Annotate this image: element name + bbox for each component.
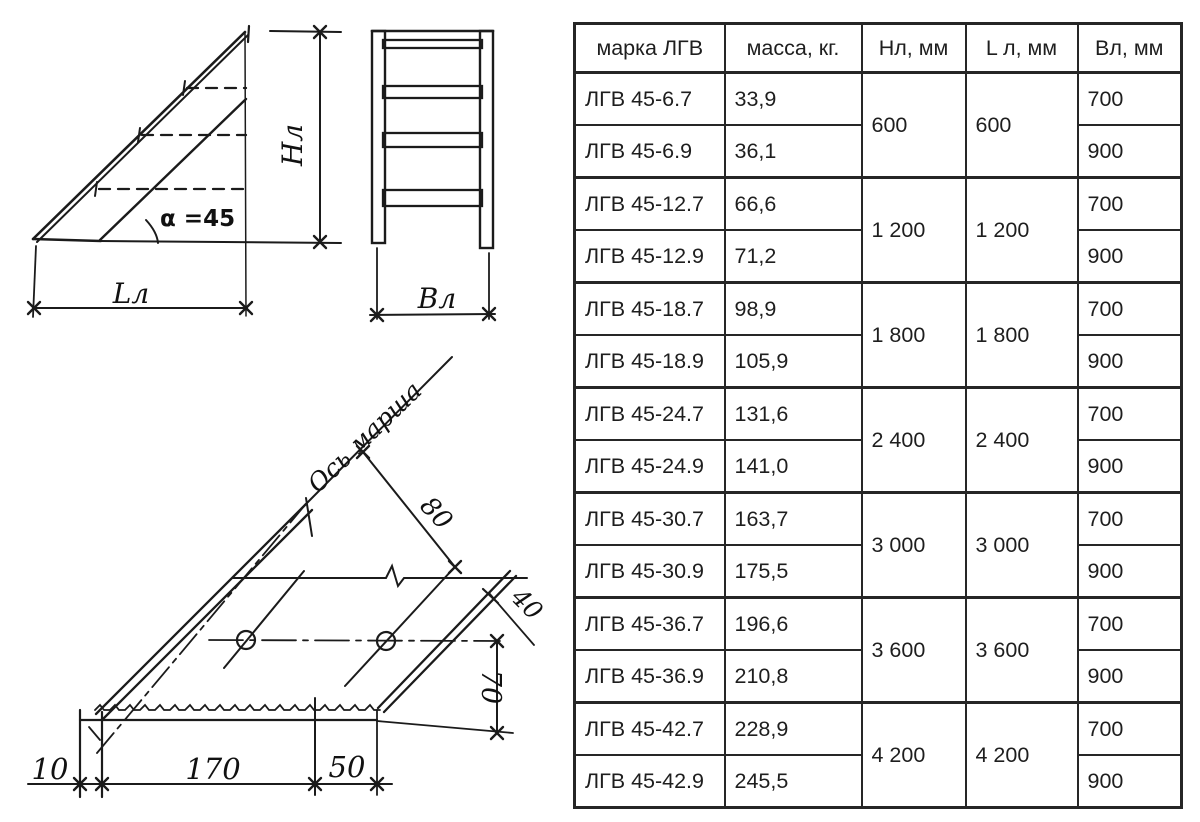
vl-cell: 700 xyxy=(1078,388,1182,441)
nl-cell: 1 800 xyxy=(862,283,966,388)
dim-10-label: 10 xyxy=(32,752,69,786)
ll-cell: 3 600 xyxy=(966,598,1078,703)
mark-cell: ЛГВ 45-30.7 xyxy=(575,493,725,546)
mark-cell: ЛГВ 45-36.9 xyxy=(575,650,725,703)
angle-arc xyxy=(146,220,158,243)
mass-cell: 196,6 xyxy=(725,598,862,651)
table-row: ЛГВ 45-24.7 131,6 2 400 2 400 700 xyxy=(575,388,1182,441)
vl-cell: 900 xyxy=(1078,440,1182,493)
angle-label: α =45 xyxy=(160,206,235,232)
col-header-mass: масса, кг. xyxy=(725,24,862,73)
ladder-spec-sheet: α =45 Нл Lл xyxy=(0,0,1200,822)
length-label: Lл xyxy=(112,277,149,310)
mark-cell: ЛГВ 45-12.7 xyxy=(575,178,725,231)
width-label: Вл xyxy=(417,282,456,315)
mark-cell: ЛГВ 45-12.9 xyxy=(575,230,725,283)
mass-cell: 71,2 xyxy=(725,230,862,283)
ladder-spec-table: марка ЛГВ масса, кг. Нл, мм L л, мм Вл, … xyxy=(573,22,1183,809)
dim-80-label: 80 xyxy=(414,491,459,536)
mark-cell: ЛГВ 45-30.9 xyxy=(575,545,725,598)
dim-70-label: 70 xyxy=(475,670,506,704)
mark-cell: ЛГВ 45-6.7 xyxy=(575,73,725,126)
back-edge-line xyxy=(233,566,527,586)
mark-cell: ЛГВ 45-42.7 xyxy=(575,703,725,756)
step-dashed-lines xyxy=(95,81,246,196)
table-row: ЛГВ 45-18.7 98,9 1 800 1 800 700 xyxy=(575,283,1182,336)
table-row: ЛГВ 45-12.7 66,6 1 200 1 200 700 xyxy=(575,178,1182,231)
mark-cell: ЛГВ 45-18.9 xyxy=(575,335,725,388)
mass-cell: 36,1 xyxy=(725,125,862,178)
nl-cell: 3 600 xyxy=(862,598,966,703)
vl-cell: 900 xyxy=(1078,125,1182,178)
flight-axis-label: Ось марша xyxy=(302,376,427,498)
vl-cell: 700 xyxy=(1078,703,1182,756)
mass-cell: 175,5 xyxy=(725,545,862,598)
vl-cell: 700 xyxy=(1078,178,1182,231)
nl-cell: 3 000 xyxy=(862,493,966,598)
vl-cell: 900 xyxy=(1078,650,1182,703)
mark-cell: ЛГВ 45-18.7 xyxy=(575,283,725,336)
technical-drawings: α =45 Нл Lл xyxy=(0,0,573,822)
ll-cell: 600 xyxy=(966,73,1078,178)
mass-cell: 210,8 xyxy=(725,650,862,703)
mass-cell: 141,0 xyxy=(725,440,862,493)
nl-cell: 1 200 xyxy=(862,178,966,283)
dim-80: 80 xyxy=(357,446,461,573)
ll-cell: 1 800 xyxy=(966,283,1078,388)
vl-cell: 700 xyxy=(1078,493,1182,546)
ll-cell: 4 200 xyxy=(966,703,1078,808)
vl-cell: 700 xyxy=(1078,598,1182,651)
vl-cell: 900 xyxy=(1078,755,1182,808)
nl-cell: 600 xyxy=(862,73,966,178)
vl-cell: 700 xyxy=(1078,73,1182,126)
nl-cell: 2 400 xyxy=(862,388,966,493)
mark-cell: ЛГВ 45-36.7 xyxy=(575,598,725,651)
table-row: ЛГВ 45-6.7 33,9 600 600 700 xyxy=(575,73,1182,126)
mark-cell: ЛГВ 45-6.9 xyxy=(575,125,725,178)
vl-cell: 700 xyxy=(1078,283,1182,336)
vl-cell: 900 xyxy=(1078,230,1182,283)
mark-cell: ЛГВ 45-24.9 xyxy=(575,440,725,493)
ll-cell: 1 200 xyxy=(966,178,1078,283)
width-dimension: Вл xyxy=(370,248,495,321)
vl-cell: 900 xyxy=(1078,335,1182,388)
ladder-side-view-drawing: α =45 Нл Lл xyxy=(28,26,341,317)
dim-170-label: 170 xyxy=(185,752,240,786)
mass-cell: 228,9 xyxy=(725,703,862,756)
vl-cell: 900 xyxy=(1078,545,1182,598)
dim-70: 70 xyxy=(475,635,506,739)
ll-cell: 3 000 xyxy=(966,493,1078,598)
mass-cell: 131,6 xyxy=(725,388,862,441)
mass-cell: 105,9 xyxy=(725,335,862,388)
table-row: ЛГВ 45-36.7 196,6 3 600 3 600 700 xyxy=(575,598,1182,651)
mass-cell: 245,5 xyxy=(725,755,862,808)
length-dimension: Lл xyxy=(28,246,252,317)
ll-cell: 2 400 xyxy=(966,388,1078,493)
col-header-ll: L л, мм xyxy=(966,24,1078,73)
col-header-mark: марка ЛГВ xyxy=(575,24,725,73)
ladder-front-view-drawing: Вл xyxy=(370,31,495,321)
table-row: ЛГВ 45-42.7 228,9 4 200 4 200 700 xyxy=(575,703,1182,756)
mass-cell: 163,7 xyxy=(725,493,862,546)
mark-cell: ЛГВ 45-24.7 xyxy=(575,388,725,441)
table-row: ЛГВ 45-30.7 163,7 3 000 3 000 700 xyxy=(575,493,1182,546)
height-dimension: Нл xyxy=(270,26,341,248)
col-header-vl: Вл, мм xyxy=(1078,24,1182,73)
step-detail-drawing: Ось марша 10 170 50 xyxy=(28,357,549,797)
height-label: Нл xyxy=(276,124,309,167)
bottom-dimension-chain: 10 170 50 xyxy=(28,750,392,790)
mass-cell: 33,9 xyxy=(725,73,862,126)
col-header-nl: Нл, мм xyxy=(862,24,966,73)
mass-cell: 98,9 xyxy=(725,283,862,336)
mark-cell: ЛГВ 45-42.9 xyxy=(575,755,725,808)
table-header-row: марка ЛГВ масса, кг. Нл, мм L л, мм Вл, … xyxy=(575,24,1182,73)
dim-50-label: 50 xyxy=(329,750,366,784)
nl-cell: 4 200 xyxy=(862,703,966,808)
mass-cell: 66,6 xyxy=(725,178,862,231)
